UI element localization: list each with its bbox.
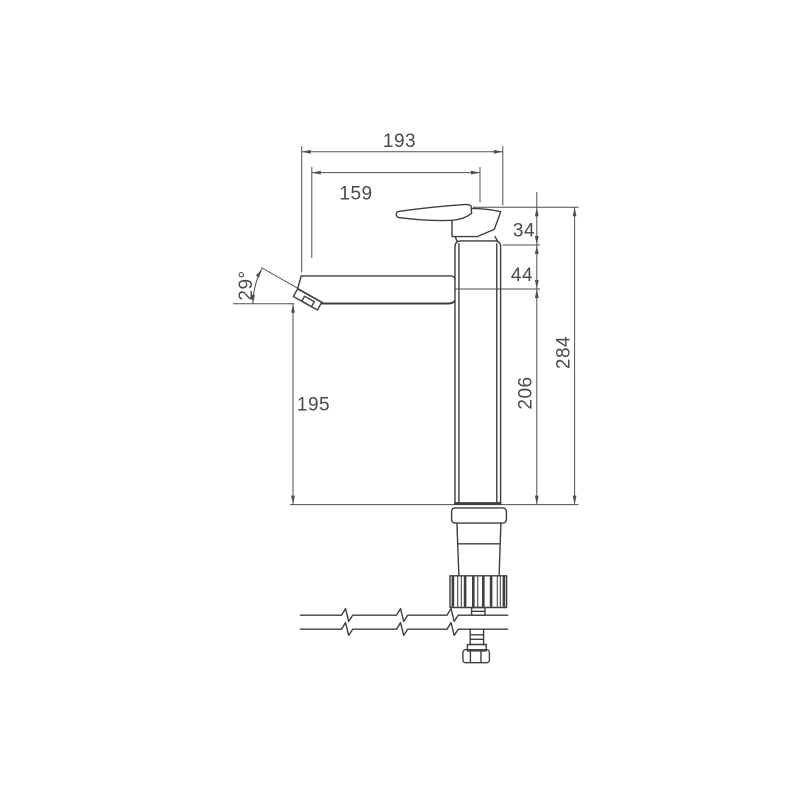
- dim-193: 193: [302, 131, 503, 273]
- dim-stack-34-44-206: 34 44 206: [511, 192, 539, 505]
- dim-284: 284: [554, 207, 577, 504]
- arrow-195-bottom: [291, 496, 295, 505]
- dim-206-label: 206: [516, 376, 537, 409]
- dim-195: 195: [233, 304, 330, 505]
- arrow-284-bottom: [573, 496, 577, 505]
- dim-193-label: 193: [383, 131, 416, 152]
- dim-34-label: 34: [513, 221, 535, 242]
- faucet-dimension-drawing: 193 159 34 44 20: [0, 0, 800, 800]
- arrow-193-right: [494, 150, 503, 154]
- spout-top-edge: [301, 276, 455, 280]
- hex-nut-facets: [470, 651, 481, 662]
- arrow-206-bottom: [535, 496, 539, 505]
- lever-handle: [396, 204, 471, 220]
- counter-surface-lines: [301, 609, 508, 636]
- knurled-mounting-nut: [450, 576, 507, 608]
- arrow-193-left: [302, 150, 311, 154]
- dimension-lines: 193 159 34 44 20: [233, 131, 579, 505]
- knurl-ridges-thick: [453, 577, 504, 607]
- dim-angle-29: 29°: [236, 268, 324, 304]
- body-column: [455, 241, 501, 504]
- arrow-44-bottom: [535, 280, 539, 289]
- counter-bottom-line: [301, 623, 508, 636]
- arrow-44-top: [535, 245, 539, 254]
- faucet-outline: [293, 204, 507, 662]
- mounting-nut-outline: [450, 576, 507, 608]
- spout: [293, 276, 455, 310]
- arrow-284-top: [573, 207, 577, 216]
- arrow-34-top: [535, 207, 539, 216]
- arrow-206-top: [535, 289, 539, 298]
- arrow-195-top: [291, 304, 295, 313]
- technical-drawing-canvas: 193 159 34 44 20: [0, 0, 800, 800]
- arrow-34-bottom: [535, 236, 539, 245]
- angle-29-label: 29°: [236, 270, 257, 300]
- lower-shaft: [457, 523, 501, 576]
- arrow-159-right: [471, 171, 480, 175]
- dim-159-label: 159: [339, 184, 372, 205]
- counter-top-line: [301, 609, 508, 622]
- arrow-159-left: [312, 171, 321, 175]
- aerator-tip: [293, 289, 321, 310]
- dim-284-label: 284: [554, 336, 575, 369]
- base-flange: [452, 508, 507, 523]
- dim-44-label: 44: [511, 265, 533, 286]
- dim-195-label: 195: [297, 395, 330, 416]
- counter-stem: [472, 608, 485, 616]
- spout-bottom-edge: [322, 301, 455, 304]
- threaded-rod: [470, 629, 483, 645]
- fixing-assembly: [463, 629, 490, 663]
- hex-nut: [463, 650, 490, 663]
- aerator-body: [293, 289, 321, 310]
- right-extension-lines: [290, 207, 579, 504]
- spout-tip-edge: [298, 276, 302, 289]
